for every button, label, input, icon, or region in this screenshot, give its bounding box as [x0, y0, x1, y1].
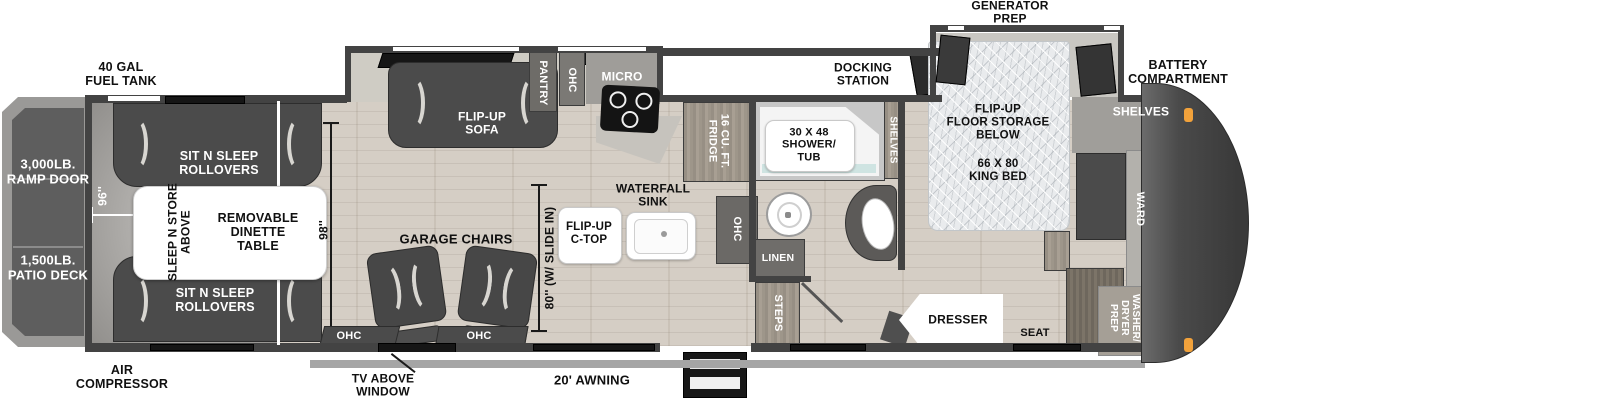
- counter-ohc-label: OHC: [731, 216, 743, 241]
- dim-96-line: [91, 214, 136, 216]
- dim-80-line: [538, 184, 540, 332]
- patio-deck-label: 1,500LB. PATIO DECK: [8, 253, 88, 282]
- step-tread: [690, 377, 740, 389]
- bedroom-cabinet: [1076, 153, 1126, 240]
- toilet-drain: [785, 212, 791, 218]
- king-bed-label: 66 X 80 KING BED: [969, 158, 1027, 184]
- rollover-bottom-label: SIT N SLEEP ROLLOVERS: [175, 286, 255, 314]
- bedroom-slide-sill: [1104, 26, 1120, 30]
- linen-label: LINEN: [762, 253, 795, 265]
- shower-label: 30 X 48 SHOWER/ TUB: [782, 127, 836, 164]
- sofa-cushion: [126, 118, 148, 170]
- steps-label: STEPS: [772, 294, 784, 331]
- ramp-door-panel: [12, 108, 84, 336]
- bottom-window: [150, 344, 254, 351]
- micro-label: MICRO: [602, 70, 643, 83]
- front-shelves-label: SHELVES: [1113, 105, 1170, 118]
- front-cap: [1141, 83, 1249, 363]
- deck-seam: [13, 246, 83, 248]
- bedroom-slide-left-wall: [930, 25, 936, 97]
- ohc-left-label: OHC: [336, 330, 361, 342]
- bath-shelves-label: SHELVES: [887, 116, 898, 163]
- ward-label: WARD: [1134, 192, 1146, 226]
- kitchen-ohc-label: OHC: [566, 67, 578, 92]
- cooktop: [600, 85, 660, 134]
- seat-label: SEAT: [1020, 327, 1049, 339]
- bottom-sill: [535, 352, 655, 356]
- bottom-sill: [1010, 352, 1082, 356]
- bottom-sill: [788, 352, 868, 356]
- rear-wall: [85, 95, 92, 352]
- sleep-n-store-label: SLEEP N STORE ABOVE: [167, 183, 194, 281]
- floor-storage-label: FLIP-UP FLOOR STORAGE BELOW: [947, 104, 1050, 143]
- burner-icon: [621, 111, 639, 129]
- ohc-right-label: OHC: [466, 330, 491, 342]
- bedroom-left-window: [936, 35, 971, 86]
- dim-80-tick: [531, 330, 547, 332]
- bedroom-slide-right-wall: [1118, 25, 1124, 97]
- air-compressor-label: AIR COMPRESSOR: [76, 363, 168, 391]
- dim-98-tick: [323, 122, 339, 124]
- bath-bottom-wall: [749, 276, 811, 282]
- burner-icon: [609, 91, 627, 109]
- garage-window-sill: [108, 96, 160, 101]
- bedroom-slide-sill: [948, 26, 964, 30]
- dinette-label: REMOVABLE DINETTE TABLE: [218, 211, 299, 253]
- rollover-top-label: SIT N SLEEP ROLLOVERS: [179, 149, 259, 177]
- bedroom-slide-window: [1075, 43, 1116, 96]
- burner-icon: [635, 92, 653, 110]
- bottom-window: [533, 344, 655, 351]
- docking-top-wall: [657, 48, 942, 56]
- bottom-sill: [130, 352, 248, 356]
- waterfall-sink-label: WATERFALL SINK: [616, 183, 690, 210]
- waterfall-sink: [626, 212, 696, 260]
- dim-80-label: 80'' (W/ SLIDE IN): [543, 207, 556, 310]
- kitchen-slide-left-wall: [345, 46, 351, 102]
- generator-prep-label: GENERATOR PREP: [971, 0, 1048, 26]
- sink-basin: [634, 219, 688, 254]
- flip-up-ctop-label: FLIP-UP C-TOP: [566, 221, 612, 247]
- garage-chairs-label: GARAGE CHAIRS: [399, 233, 512, 248]
- garage-top-window: [165, 96, 245, 104]
- bath-left-wall: [749, 97, 756, 282]
- entry-steps: [683, 352, 747, 398]
- rv-floorplan: 3,000LB. RAMP DOOR 1,500LB. PATIO DECK S…: [0, 0, 1600, 404]
- awning-label: 20' AWNING: [554, 374, 630, 389]
- bath-right-wall: [898, 97, 905, 270]
- bed-steps: [1044, 231, 1070, 271]
- dim-80-tick: [531, 184, 547, 186]
- ramp-door-label: 3,000LB. RAMP DOOR: [7, 157, 89, 186]
- washer-dryer-label: WASHER/ DRYER PREP: [1107, 294, 1141, 342]
- pantry-label: PANTRY: [537, 60, 549, 105]
- sofa-cushion: [287, 275, 309, 327]
- marker-light: [1184, 108, 1193, 122]
- battery-compartment-label: BATTERY COMPARTMENT: [1128, 58, 1228, 86]
- bottom-window: [1013, 344, 1081, 351]
- awning-bar: [310, 360, 1145, 368]
- sofa-cushion: [287, 118, 309, 170]
- vanity-sink: [858, 196, 899, 253]
- docking-station-label: DOCKING STATION: [834, 62, 892, 89]
- dim-98-label: 98'': [317, 220, 330, 240]
- bottom-window: [790, 344, 866, 351]
- fuel-tank-label: 40 GAL FUEL TANK: [85, 60, 156, 88]
- flip-up-sofa-label: FLIP-UP SOFA: [458, 111, 506, 138]
- dresser-label: DRESSER: [928, 313, 987, 326]
- fridge-label: 16 CU. FT. FRIDGE: [706, 114, 731, 169]
- kitchen-slide-sill: [558, 47, 646, 51]
- sofa-cushion: [403, 77, 425, 129]
- sofa-cushion: [126, 275, 148, 327]
- kitchen-slide-sill: [393, 47, 519, 51]
- tv-above-window-label: TV ABOVE WINDOW: [352, 373, 415, 400]
- toilet: [766, 192, 812, 237]
- marker-light: [1184, 338, 1193, 352]
- faucet-icon: [661, 231, 667, 237]
- dim-96-label: 96'': [96, 186, 109, 206]
